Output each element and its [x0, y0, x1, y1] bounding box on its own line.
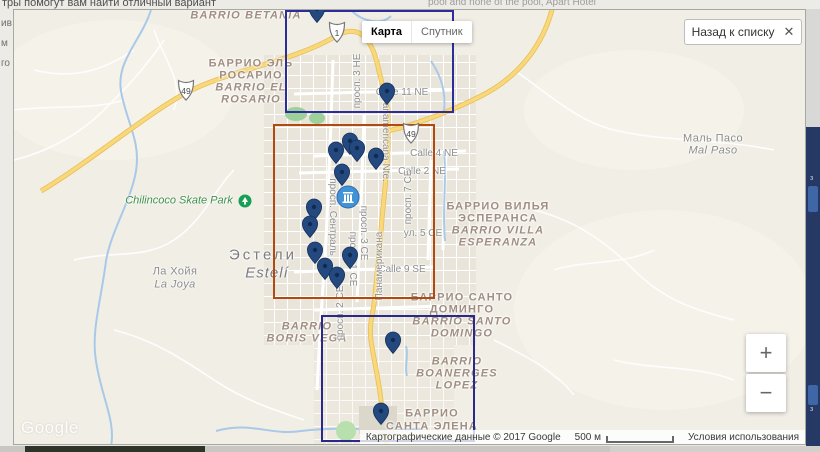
route-shield: 49 [404, 124, 419, 144]
hotel-pin[interactable] [328, 142, 343, 164]
terms-of-use-link[interactable]: Условия использования [688, 432, 799, 443]
attribution-bar: Картографические данные © 2017 Google 50… [360, 430, 805, 444]
hotel-pin[interactable] [329, 267, 344, 289]
hotel-pin[interactable] [349, 140, 364, 162]
background-chip [808, 186, 818, 212]
hotel-pin[interactable] [334, 164, 349, 186]
back-to-list-label: Назад к списку [692, 25, 775, 39]
map-modal[interactable]: BARRIO BETANIAБАРРИО ЭЛЬРОСАРИОBARRIO EL… [13, 9, 806, 445]
map-view-button[interactable]: Карта [362, 21, 411, 43]
back-to-list-button[interactable]: Назад к списку ✕ [684, 19, 802, 45]
background-fragment: з [810, 175, 813, 182]
map-overlay: 49149 [14, 10, 806, 445]
background-fragment: ив [1, 18, 13, 29]
scale-label: 500 м [575, 432, 601, 443]
hotel-pin[interactable] [373, 403, 388, 425]
background-page-right: з з [806, 9, 820, 446]
hotel-pin[interactable] [302, 216, 317, 238]
background-text-right: pool and none of the pool, Apart Hotel [428, 0, 596, 8]
background-fragment: з [810, 406, 813, 413]
route-shield: 1 [330, 23, 345, 43]
close-icon[interactable]: ✕ [783, 24, 794, 40]
background-chip [808, 385, 818, 405]
satellite-view-button[interactable]: Спутник [411, 21, 471, 43]
map-type-control: Карта Спутник [362, 21, 472, 43]
scale-control: 500 м [575, 432, 674, 443]
background-photo-thumbnail [25, 446, 205, 452]
background-page-top: тры помогут вам найти отличный вариант p… [0, 0, 820, 9]
hotel-pin[interactable] [309, 10, 324, 23]
hotel-pin[interactable] [385, 332, 400, 354]
svg-text:49: 49 [181, 86, 191, 96]
hotel-pin[interactable] [368, 148, 383, 170]
hotel-cluster-marker[interactable] [337, 186, 359, 208]
background-fragment: м [1, 38, 13, 49]
background-panel [610, 446, 820, 452]
route-shield: 49 [179, 81, 194, 101]
svg-text:49: 49 [406, 129, 416, 139]
svg-text:1: 1 [335, 28, 340, 38]
hotel-pin[interactable] [379, 83, 394, 105]
hotel-pin[interactable] [342, 247, 357, 269]
zoom-out-button[interactable]: − [746, 374, 786, 412]
background-fragment: го [1, 58, 13, 69]
zoom-in-button[interactable]: + [746, 334, 786, 372]
map-data-attribution: Картографические данные © 2017 Google [366, 432, 561, 443]
background-page-bottom [0, 446, 820, 452]
google-logo: Google [21, 418, 79, 438]
background-text-left: тры помогут вам найти отличный вариант [2, 0, 216, 9]
scale-bar [606, 436, 674, 443]
background-page-left: ив м го [0, 9, 13, 446]
